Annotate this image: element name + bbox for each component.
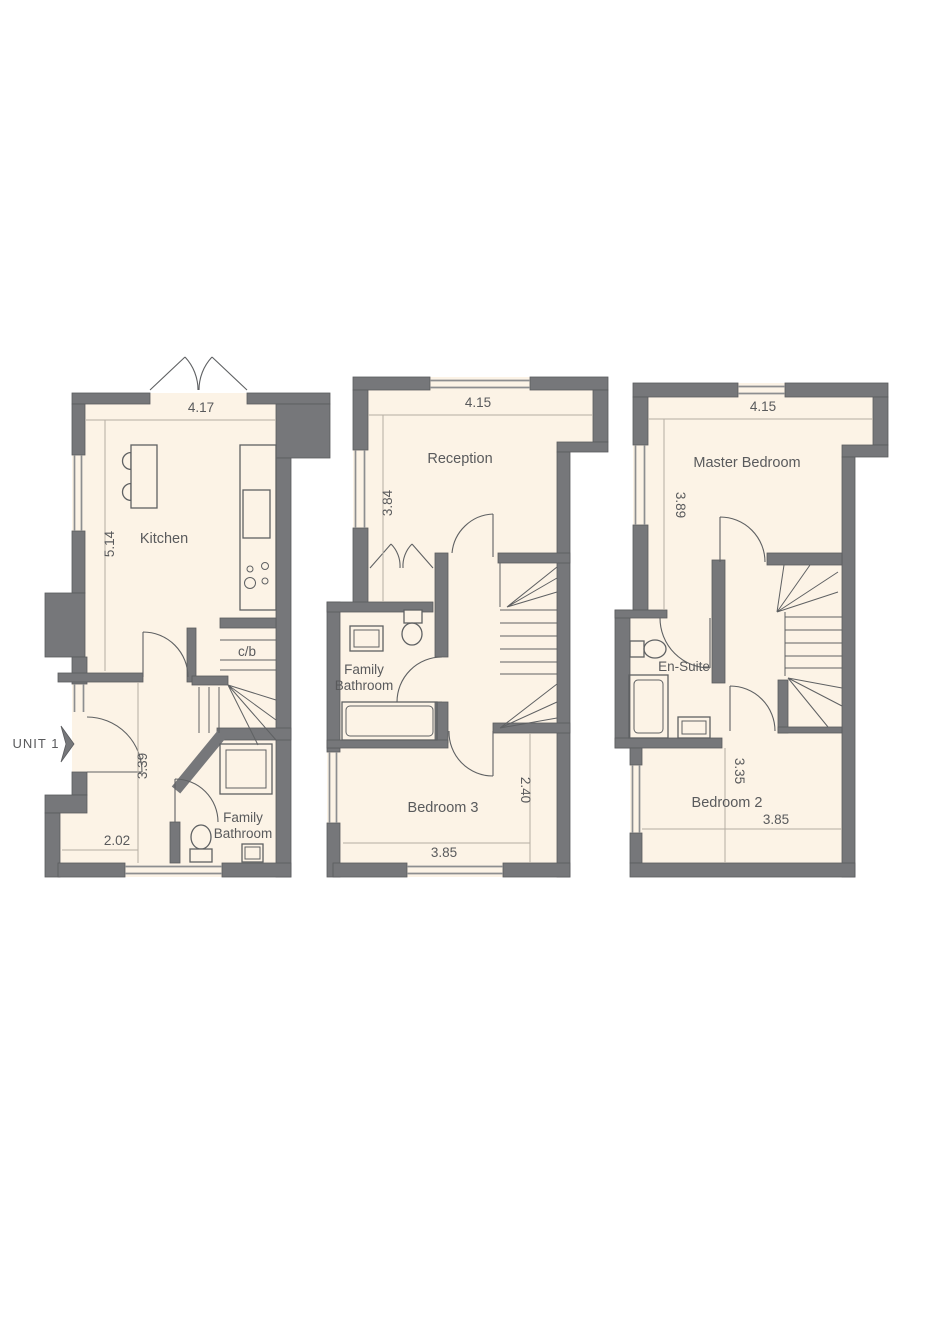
dim-reception-depth: 3.84: [380, 489, 395, 516]
master-bedroom-label: Master Bedroom: [693, 455, 800, 471]
bathroom-first-label-2: Bathroom: [335, 678, 394, 693]
dim-bedroom3-width: 3.85: [431, 845, 457, 860]
dim-hall-width: 2.02: [104, 833, 130, 848]
second-floor-plan: 4.15 3.89 3.35 3.85 Master Bedroom En-Su…: [615, 383, 888, 877]
bathroom-ground-label-1: Family: [223, 810, 263, 825]
reception-label: Reception: [427, 451, 492, 467]
bedroom3-label: Bedroom 3: [408, 800, 479, 816]
dim-bedroom3-depth: 2.40: [518, 777, 533, 803]
bedroom2-label: Bedroom 2: [692, 795, 763, 811]
dim-kitchen-depth: 5.14: [102, 530, 117, 557]
floorplan-canvas: 4.17 5.14 3.39 2.02 Kitchen c/b Family B…: [0, 0, 940, 1330]
unit-label: UNIT 1: [13, 736, 60, 751]
kitchen-label: Kitchen: [140, 531, 188, 547]
dim-hall-depth: 3.39: [135, 753, 150, 779]
dim-bedroom2-depth: 3.35: [732, 758, 747, 784]
ground-floor-plan: 4.17 5.14 3.39 2.02 Kitchen c/b Family B…: [13, 357, 330, 877]
bathroom-first-label-1: Family: [344, 662, 384, 677]
dim-reception-width: 4.15: [465, 395, 491, 410]
dim-bedroom2-width: 3.85: [763, 812, 789, 827]
first-floor-plan: 4.15 3.84 2.40 3.85 Reception Family Bat…: [327, 377, 608, 877]
floorplan-drawing: 4.17 5.14 3.39 2.02 Kitchen c/b Family B…: [0, 0, 940, 1330]
cupboard-label: c/b: [238, 644, 256, 659]
dim-master-width: 4.15: [750, 399, 776, 414]
dim-kitchen-width: 4.17: [188, 400, 214, 415]
dim-master-depth: 3.89: [673, 492, 688, 518]
ensuite-label: En-Suite: [658, 659, 710, 674]
bathroom-ground-label-2: Bathroom: [214, 826, 273, 841]
french-doors: [150, 357, 247, 390]
